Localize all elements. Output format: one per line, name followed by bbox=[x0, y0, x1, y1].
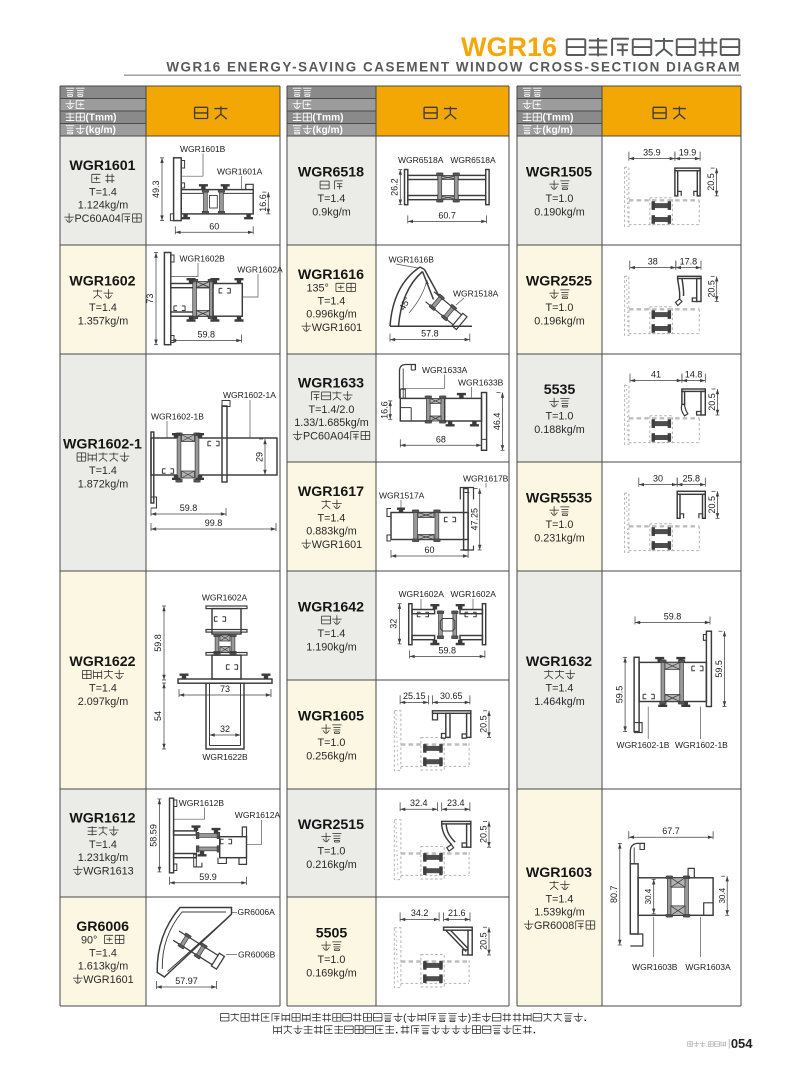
svg-text:GR6006B: GR6006B bbox=[238, 950, 276, 960]
svg-text:WGR1612: WGR1612 bbox=[69, 811, 135, 827]
svg-text:WGR1622B: WGR1622B bbox=[202, 752, 248, 762]
svg-text:(: ( bbox=[403, 1013, 407, 1024]
svg-text:20.5: 20.5 bbox=[479, 715, 489, 733]
svg-text:0.188kg/m: 0.188kg/m bbox=[534, 424, 584, 436]
svg-text:30.4: 30.4 bbox=[644, 888, 653, 904]
svg-text:80.7: 80.7 bbox=[609, 885, 619, 903]
svg-text:21.6: 21.6 bbox=[448, 908, 466, 918]
svg-text:T=1.4: T=1.4 bbox=[89, 302, 117, 314]
svg-text:0.883kg/m: 0.883kg/m bbox=[306, 526, 356, 538]
svg-text:WGR1633B: WGR1633B bbox=[458, 378, 504, 388]
svg-text:0.216kg/m: 0.216kg/m bbox=[306, 859, 356, 871]
svg-text:WGR16: WGR16 bbox=[461, 32, 557, 62]
svg-text:1.231kg/m: 1.231kg/m bbox=[78, 852, 128, 864]
svg-text:.: . bbox=[706, 1041, 708, 1048]
svg-text:2.097kg/m: 2.097kg/m bbox=[78, 696, 128, 708]
svg-text:1.357kg/m: 1.357kg/m bbox=[78, 315, 128, 327]
svg-text:WGR1601: WGR1601 bbox=[69, 158, 135, 174]
svg-text:T=1.0: T=1.0 bbox=[546, 302, 574, 314]
svg-text:59.8: 59.8 bbox=[438, 645, 456, 655]
svg-text:20.5: 20.5 bbox=[479, 826, 489, 844]
svg-text:WGR1602-1: WGR1602-1 bbox=[63, 437, 142, 453]
svg-text:WGR1602-1B: WGR1602-1B bbox=[151, 412, 204, 422]
svg-text:30: 30 bbox=[653, 474, 663, 484]
svg-text:59.8: 59.8 bbox=[197, 330, 215, 340]
svg-text:T=1.0: T=1.0 bbox=[318, 737, 346, 749]
svg-text:WGR1602B: WGR1602B bbox=[180, 254, 226, 264]
svg-text:WGR5535: WGR5535 bbox=[526, 491, 592, 507]
svg-text:WGR1602A: WGR1602A bbox=[451, 589, 497, 599]
svg-text:67.7: 67.7 bbox=[662, 826, 680, 836]
svg-text:1.190kg/m: 1.190kg/m bbox=[306, 641, 356, 653]
svg-text:WGR1602A: WGR1602A bbox=[202, 593, 248, 603]
svg-text:PC60A04: PC60A04 bbox=[303, 430, 349, 442]
svg-text:0.996kg/m: 0.996kg/m bbox=[306, 309, 356, 321]
svg-text:16.6: 16.6 bbox=[258, 194, 268, 212]
svg-text:59.9: 59.9 bbox=[199, 872, 217, 882]
svg-text:(Tmm): (Tmm) bbox=[312, 113, 343, 124]
svg-text:49.3: 49.3 bbox=[151, 180, 161, 198]
svg-text:WGR1518A: WGR1518A bbox=[453, 289, 499, 299]
svg-text:58.59: 58.59 bbox=[149, 824, 159, 847]
svg-text:60: 60 bbox=[209, 221, 219, 231]
svg-text:WGR2525: WGR2525 bbox=[526, 274, 592, 290]
svg-text:WGR1602-1B: WGR1602-1B bbox=[675, 740, 728, 750]
svg-text:GR6006: GR6006 bbox=[76, 919, 129, 935]
svg-text:135°: 135° bbox=[307, 282, 335, 294]
svg-text:WGR1601: WGR1601 bbox=[312, 539, 362, 551]
svg-text:34.2: 34.2 bbox=[411, 908, 429, 918]
svg-text:(Tmm): (Tmm) bbox=[85, 113, 116, 124]
svg-text:1.464kg/m: 1.464kg/m bbox=[534, 696, 584, 708]
svg-text:54: 54 bbox=[153, 711, 163, 721]
svg-text:WGR2515: WGR2515 bbox=[298, 817, 364, 833]
svg-text:WGR1617B: WGR1617B bbox=[463, 474, 509, 484]
svg-text:WGR1603B: WGR1603B bbox=[632, 962, 678, 972]
svg-text:60: 60 bbox=[425, 545, 435, 555]
svg-text:(kg/m): (kg/m) bbox=[85, 125, 116, 136]
svg-text:68: 68 bbox=[436, 434, 446, 444]
svg-text:(kg/m): (kg/m) bbox=[312, 125, 343, 136]
svg-text:99.8: 99.8 bbox=[205, 518, 223, 528]
svg-text:WGR1632: WGR1632 bbox=[526, 654, 592, 670]
svg-text:WGR1602A: WGR1602A bbox=[237, 265, 283, 275]
svg-text:57.97: 57.97 bbox=[175, 976, 198, 986]
svg-text:WGR6518A: WGR6518A bbox=[450, 155, 496, 165]
svg-text:T=1.4: T=1.4 bbox=[546, 894, 574, 906]
svg-text:WGR1605: WGR1605 bbox=[298, 709, 364, 725]
svg-text:73: 73 bbox=[145, 294, 155, 304]
svg-text:WGR1613: WGR1613 bbox=[83, 865, 133, 877]
svg-text:1.613kg/m: 1.613kg/m bbox=[78, 961, 128, 973]
svg-text:WGR1633: WGR1633 bbox=[298, 376, 364, 392]
svg-text:WGR6518: WGR6518 bbox=[298, 165, 364, 181]
svg-text:60.7: 60.7 bbox=[438, 210, 456, 220]
svg-text:WGR1616: WGR1616 bbox=[298, 267, 364, 283]
svg-text:47.25: 47.25 bbox=[469, 508, 479, 531]
svg-text:0.231kg/m: 0.231kg/m bbox=[534, 532, 584, 544]
svg-text:WGR1633A: WGR1633A bbox=[422, 365, 468, 375]
svg-text:25.8: 25.8 bbox=[682, 474, 700, 484]
svg-text:GR6008: GR6008 bbox=[534, 920, 574, 932]
svg-text:GR6006A: GR6006A bbox=[238, 907, 276, 917]
svg-text:20.5: 20.5 bbox=[706, 173, 716, 191]
svg-text:32: 32 bbox=[220, 724, 230, 734]
svg-text:32: 32 bbox=[389, 619, 399, 629]
svg-text:WGR1603: WGR1603 bbox=[526, 865, 592, 881]
svg-text:59.5: 59.5 bbox=[614, 686, 624, 704]
svg-text:20.5: 20.5 bbox=[706, 280, 716, 298]
svg-text:19.9: 19.9 bbox=[679, 148, 697, 158]
svg-text:57.8: 57.8 bbox=[421, 329, 439, 339]
svg-text:WGR1601: WGR1601 bbox=[83, 974, 133, 986]
svg-text:0.169kg/m: 0.169kg/m bbox=[306, 967, 356, 979]
svg-text:90°: 90° bbox=[81, 934, 103, 946]
svg-text:T=1.0: T=1.0 bbox=[546, 411, 574, 423]
svg-text:WGR16 ENERGY-SAVING CASEMENT W: WGR16 ENERGY-SAVING CASEMENT WINDOW CROS… bbox=[166, 60, 741, 75]
svg-text:054: 054 bbox=[731, 1036, 753, 1051]
svg-text:T=1.4: T=1.4 bbox=[546, 683, 574, 695]
svg-text:WGR1505: WGR1505 bbox=[526, 165, 592, 181]
svg-text:(Tmm): (Tmm) bbox=[542, 113, 573, 124]
svg-text:5535: 5535 bbox=[544, 382, 576, 398]
svg-text:WGR1601B: WGR1601B bbox=[180, 144, 226, 154]
svg-text:30.4: 30.4 bbox=[718, 887, 727, 903]
svg-text:73: 73 bbox=[220, 684, 230, 694]
svg-text:25.15: 25.15 bbox=[403, 691, 426, 701]
svg-text:WGR1642: WGR1642 bbox=[298, 600, 364, 616]
svg-text:WGR1612B: WGR1612B bbox=[179, 798, 225, 808]
svg-text:WGR1617: WGR1617 bbox=[298, 484, 364, 500]
svg-text:59.8: 59.8 bbox=[153, 634, 163, 652]
svg-text:41: 41 bbox=[651, 370, 661, 380]
svg-text:T=1.4: T=1.4 bbox=[89, 948, 117, 960]
svg-text:WGR1601: WGR1601 bbox=[312, 322, 362, 334]
svg-text:WGR1602-1B: WGR1602-1B bbox=[617, 740, 670, 750]
svg-text:WGR1603A: WGR1603A bbox=[685, 962, 731, 972]
svg-text:WGR1602-1A: WGR1602-1A bbox=[223, 390, 276, 400]
svg-text:T=1.4: T=1.4 bbox=[89, 187, 117, 199]
svg-text:30.65: 30.65 bbox=[440, 691, 463, 701]
svg-text:17.8: 17.8 bbox=[680, 257, 698, 267]
svg-text:1.124kg/m: 1.124kg/m bbox=[78, 200, 128, 212]
svg-text:WGR1602: WGR1602 bbox=[69, 274, 135, 290]
svg-text:59.8: 59.8 bbox=[664, 612, 682, 622]
svg-text:): ) bbox=[468, 1013, 471, 1024]
svg-text:5505: 5505 bbox=[316, 926, 348, 942]
svg-text:20.5: 20.5 bbox=[707, 496, 717, 514]
svg-text:46.4: 46.4 bbox=[492, 413, 502, 431]
svg-text:0.9kg/m: 0.9kg/m bbox=[312, 206, 350, 218]
svg-text:16.6: 16.6 bbox=[379, 401, 389, 419]
svg-text:59.5: 59.5 bbox=[714, 660, 724, 678]
svg-text:T=1.4: T=1.4 bbox=[318, 628, 346, 640]
svg-text:29: 29 bbox=[255, 452, 265, 462]
svg-text:WGR1622: WGR1622 bbox=[69, 654, 135, 670]
svg-text:T=1.4: T=1.4 bbox=[318, 193, 346, 205]
svg-text:T=1.4: T=1.4 bbox=[89, 683, 117, 695]
svg-text:T=1.0: T=1.0 bbox=[546, 193, 574, 205]
svg-text:23.4: 23.4 bbox=[447, 798, 465, 808]
svg-text:26.2: 26.2 bbox=[390, 178, 400, 196]
svg-text:T=1.4: T=1.4 bbox=[318, 296, 346, 308]
svg-text:WGR1616B: WGR1616B bbox=[389, 255, 435, 265]
svg-text:14.8: 14.8 bbox=[685, 370, 703, 380]
svg-text:32.4: 32.4 bbox=[410, 798, 428, 808]
svg-text:59.8: 59.8 bbox=[180, 503, 198, 513]
svg-text:0.196kg/m: 0.196kg/m bbox=[534, 315, 584, 327]
svg-text:0.256kg/m: 0.256kg/m bbox=[306, 750, 356, 762]
svg-text:T=1.0: T=1.0 bbox=[318, 846, 346, 858]
svg-text:1.33/1.685kg/m: 1.33/1.685kg/m bbox=[294, 417, 368, 429]
svg-text:WGR1517A: WGR1517A bbox=[379, 491, 425, 501]
svg-text:1.872kg/m: 1.872kg/m bbox=[78, 478, 128, 490]
svg-text:T=1.4: T=1.4 bbox=[89, 465, 117, 477]
svg-text:WGR1602A: WGR1602A bbox=[399, 589, 445, 599]
svg-text:WGR6518A: WGR6518A bbox=[398, 155, 444, 165]
svg-text:0.190kg/m: 0.190kg/m bbox=[534, 206, 584, 218]
svg-text:1.539kg/m: 1.539kg/m bbox=[534, 907, 584, 919]
svg-text:T=1.4: T=1.4 bbox=[318, 513, 346, 525]
svg-text:WGR1601A: WGR1601A bbox=[217, 167, 263, 177]
svg-text:T=1.0: T=1.0 bbox=[546, 519, 574, 531]
svg-text:T=1.4: T=1.4 bbox=[89, 839, 117, 851]
svg-text:20.5: 20.5 bbox=[707, 393, 717, 411]
svg-text:20.5: 20.5 bbox=[479, 932, 489, 950]
svg-text:35.9: 35.9 bbox=[643, 148, 661, 158]
svg-text:WGR1612A: WGR1612A bbox=[235, 810, 281, 820]
svg-text:T=1.0: T=1.0 bbox=[318, 954, 346, 966]
svg-text:T=1.4/2.0: T=1.4/2.0 bbox=[309, 404, 355, 416]
svg-text:38: 38 bbox=[648, 257, 658, 267]
svg-text:PC60A04: PC60A04 bbox=[74, 213, 120, 225]
svg-text:(kg/m): (kg/m) bbox=[542, 125, 573, 136]
